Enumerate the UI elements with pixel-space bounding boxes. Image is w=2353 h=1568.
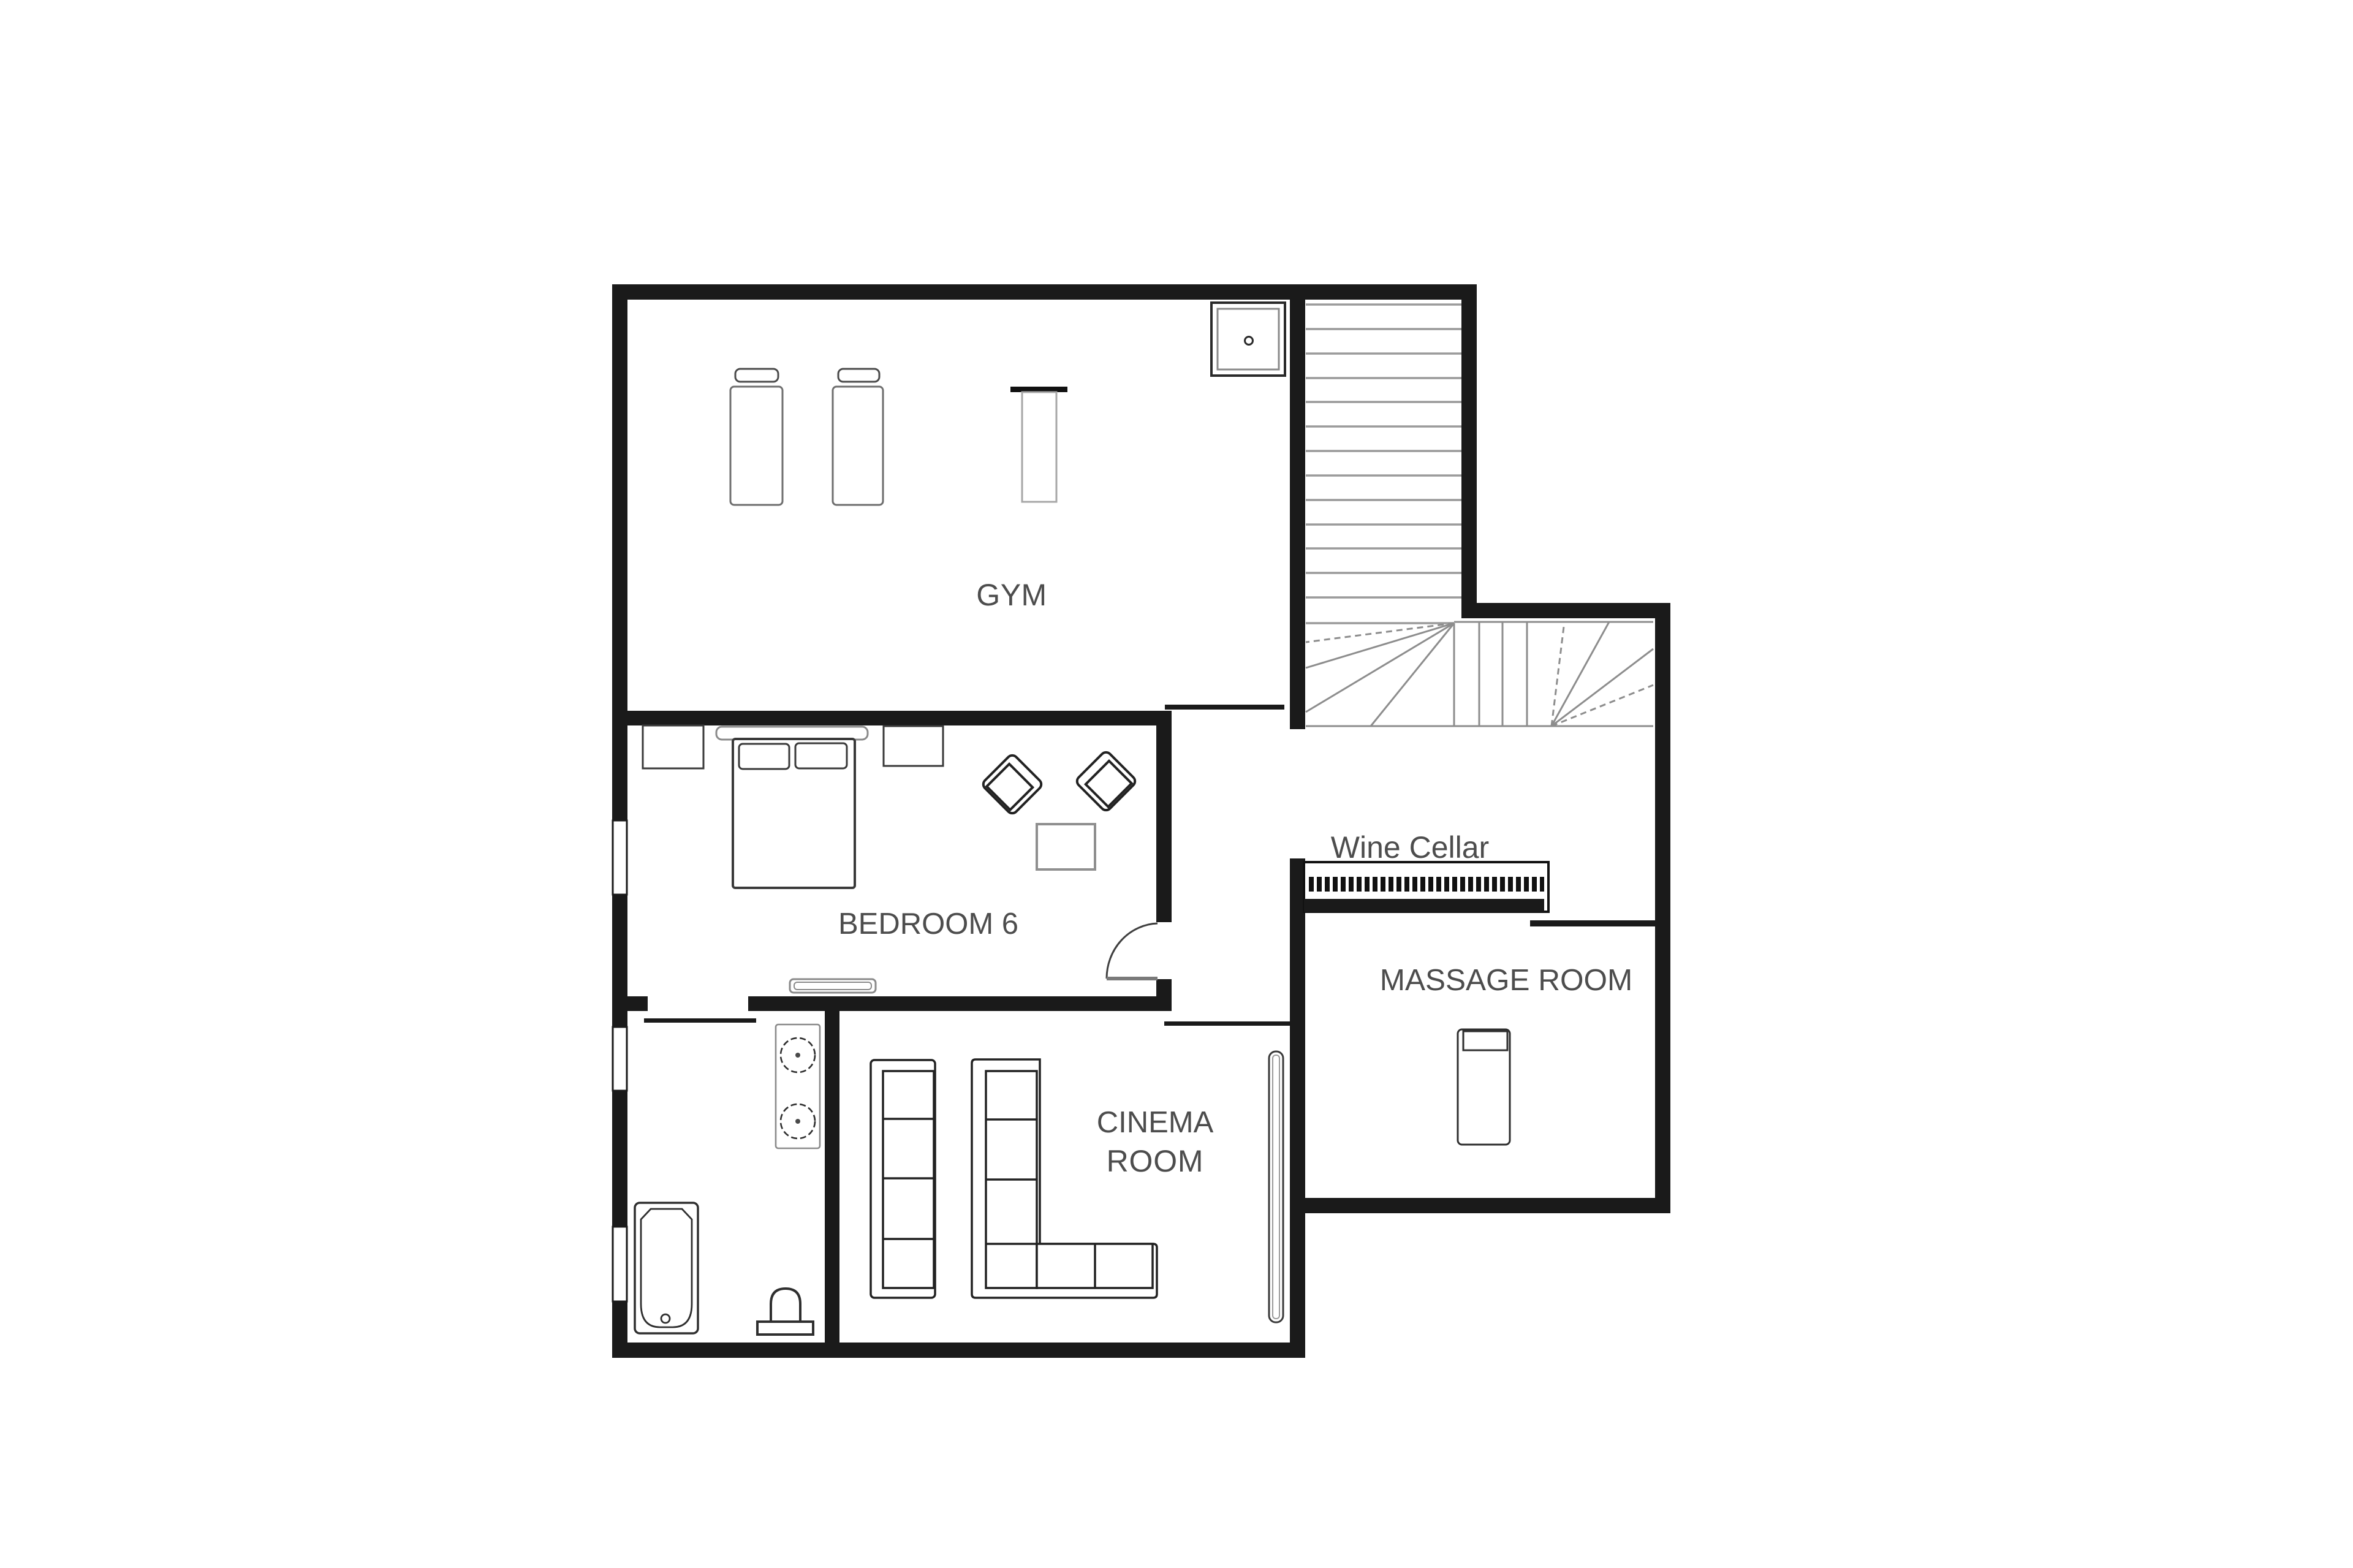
svg-text:CINEMA: CINEMA (1097, 1106, 1214, 1139)
svg-text:BEDROOM 6: BEDROOM 6 (838, 907, 1018, 941)
svg-text:ROOM: ROOM (1107, 1144, 1204, 1178)
svg-text:GYM: GYM (976, 578, 1047, 612)
svg-text:Wine Cellar: Wine Cellar (1331, 830, 1489, 865)
svg-text:MASSAGE ROOM: MASSAGE ROOM (1380, 963, 1633, 997)
